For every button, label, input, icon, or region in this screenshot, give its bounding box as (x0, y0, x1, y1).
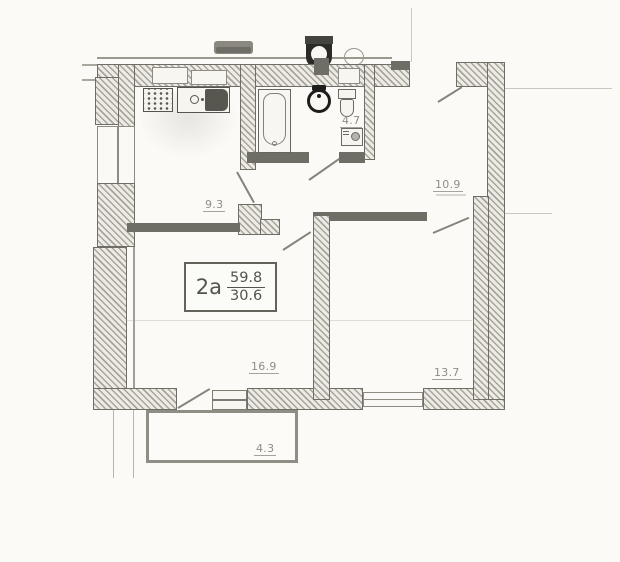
living-area-value: 30.6 (227, 288, 265, 304)
floor-plan: 9.3 4.7 10.9 16.9 13.7 4.3 2a 59.8 30.6 (0, 0, 620, 562)
washbasin (307, 89, 331, 113)
dimension-line (133, 410, 134, 478)
vent-duct-dark (314, 58, 329, 75)
vent-duct (152, 67, 188, 84)
wall-bottom-left-pier (93, 388, 177, 410)
dimension-line (82, 64, 97, 66)
wall-left-upper (118, 64, 135, 128)
column-hall-ext (260, 219, 280, 235)
column-hall (238, 204, 262, 235)
toilet-tank (338, 89, 356, 99)
window-balcony-frame (213, 399, 246, 401)
area-fraction: 59.8 30.6 (227, 270, 265, 303)
dimension-line (93, 320, 472, 321)
vent-duct (338, 68, 360, 84)
neighbor-counter-shade (216, 47, 251, 53)
kitchen-area-label: 9.3 (203, 199, 225, 212)
kitchen-door-leaf (236, 172, 255, 204)
wall-bottom-middle-pier (247, 388, 363, 410)
apartment-type-label: 2a (196, 275, 222, 299)
balcony-area-label: 4.3 (254, 443, 276, 456)
washing-machine-panel (343, 134, 349, 135)
wall-left-pilaster (95, 77, 119, 125)
bathroom-area-label: 4.7 (340, 115, 362, 128)
wall-left-middle (97, 183, 135, 247)
dimension-line (505, 88, 612, 89)
stove (143, 88, 173, 112)
total-area-value: 59.8 (227, 270, 265, 287)
wall-bathroom-bottom (247, 152, 309, 163)
bathroom-door-leaf (308, 158, 339, 181)
balcony-door-leaf (177, 388, 210, 409)
wall-bathroom-bottom-stub (339, 152, 365, 163)
wall-left-lower (93, 247, 127, 395)
hallway-area-label: 10.9 (433, 179, 463, 192)
window-left (97, 126, 135, 184)
wall-bathroom-right (364, 64, 375, 160)
living-room-area-label: 16.9 (249, 361, 279, 374)
hallway-label-smudge (436, 194, 466, 196)
dimension-line (113, 410, 114, 478)
window-left-frame (117, 127, 119, 183)
window-bedroom-frame (364, 399, 422, 400)
living-room-door-leaf (282, 231, 311, 251)
wall-rooms-partition (313, 215, 330, 400)
washing-machine-panel (343, 131, 349, 132)
wall-right-inner (473, 196, 489, 400)
kitchen-faucet (190, 95, 199, 104)
bedroom-door-leaf (433, 217, 470, 234)
wall-kitchen-bottom (127, 223, 240, 232)
dimension-line (411, 8, 412, 62)
kitchen-sink-basin (205, 89, 228, 111)
wall-hallway-bottom (313, 212, 427, 221)
entry-threshold (391, 61, 410, 70)
apartment-type-box: 2a 59.8 30.6 (184, 262, 277, 312)
kitchen-faucet-dot (201, 98, 204, 101)
neighbor-toilet-tank (305, 36, 333, 44)
bathtub-drain (272, 141, 277, 146)
washbasin-dot (317, 94, 321, 98)
entry-door-leaf (437, 86, 462, 103)
washing-machine-door (351, 132, 360, 141)
washbasin-tap (312, 85, 326, 91)
wall-right (487, 62, 505, 400)
bedroom-area-label: 13.7 (432, 367, 462, 380)
bathtub-inner (263, 93, 286, 145)
vent-duct (191, 70, 227, 85)
wall-left-inner-face (133, 247, 135, 388)
